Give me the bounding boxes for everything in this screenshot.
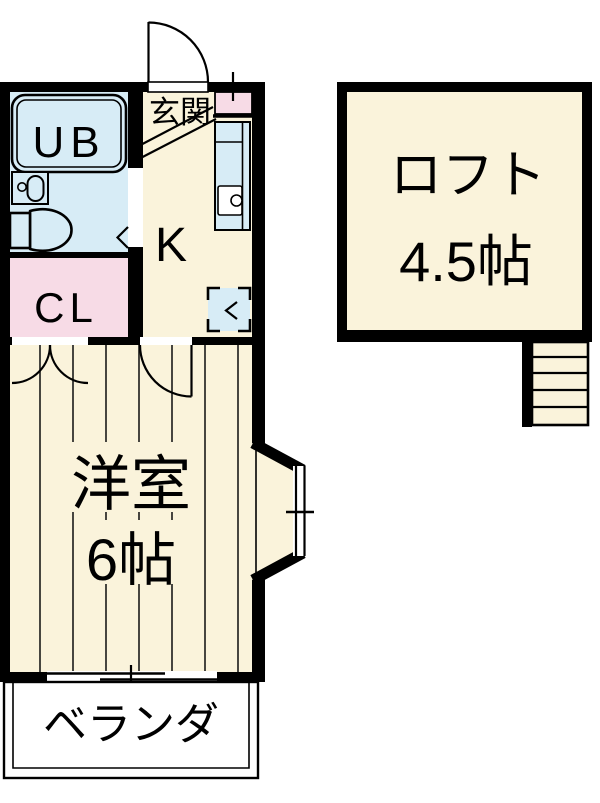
washing-machine-icon bbox=[208, 288, 250, 331]
kitchen-fixtures bbox=[208, 122, 250, 331]
kitchen-door-opening bbox=[140, 337, 192, 345]
toilet-bowl-icon bbox=[30, 209, 72, 251]
entrance-label: 玄関 bbox=[149, 95, 211, 130]
closet-label: CL bbox=[34, 284, 98, 331]
entrance-door-arc bbox=[149, 23, 209, 83]
floor-plan-page: 玄関 UB CL K 洋室 6帖 ロフト 4.5帖 ベランダ bbox=[0, 0, 600, 803]
floor-plan: 玄関 UB CL K 洋室 6帖 ロフト 4.5帖 ベランダ bbox=[0, 0, 600, 803]
western-room-label: 洋室 bbox=[71, 451, 191, 518]
washbasin-faucet-icon bbox=[18, 183, 26, 191]
toilet-tank-icon bbox=[10, 213, 30, 248]
entrance-door-sill bbox=[148, 82, 208, 92]
unit-bath-label: UB bbox=[32, 118, 105, 167]
veranda-unit: ベランダ bbox=[4, 682, 258, 778]
main-unit: 玄関 UB CL K 洋室 6帖 bbox=[0, 22, 314, 693]
stairs-body bbox=[532, 342, 588, 425]
loft-label: ロフト bbox=[390, 147, 546, 205]
ub-door-opening bbox=[128, 168, 143, 247]
western-room-size: 6帖 bbox=[86, 528, 176, 593]
closet-opening bbox=[12, 337, 88, 345]
loft-size: 4.5帖 bbox=[399, 230, 533, 293]
kitchen-faucet-icon bbox=[231, 195, 242, 206]
kitchen-label: K bbox=[155, 219, 187, 272]
loft-unit: ロフト 4.5帖 bbox=[337, 82, 592, 427]
veranda-label: ベランダ bbox=[43, 700, 219, 749]
stairs-side-wall bbox=[522, 342, 532, 427]
stairs-icon bbox=[522, 342, 588, 427]
wall-ub-closet bbox=[10, 252, 128, 258]
washbasin-icon bbox=[28, 176, 44, 201]
room-loft bbox=[347, 92, 582, 330]
bay-window bbox=[252, 443, 314, 580]
